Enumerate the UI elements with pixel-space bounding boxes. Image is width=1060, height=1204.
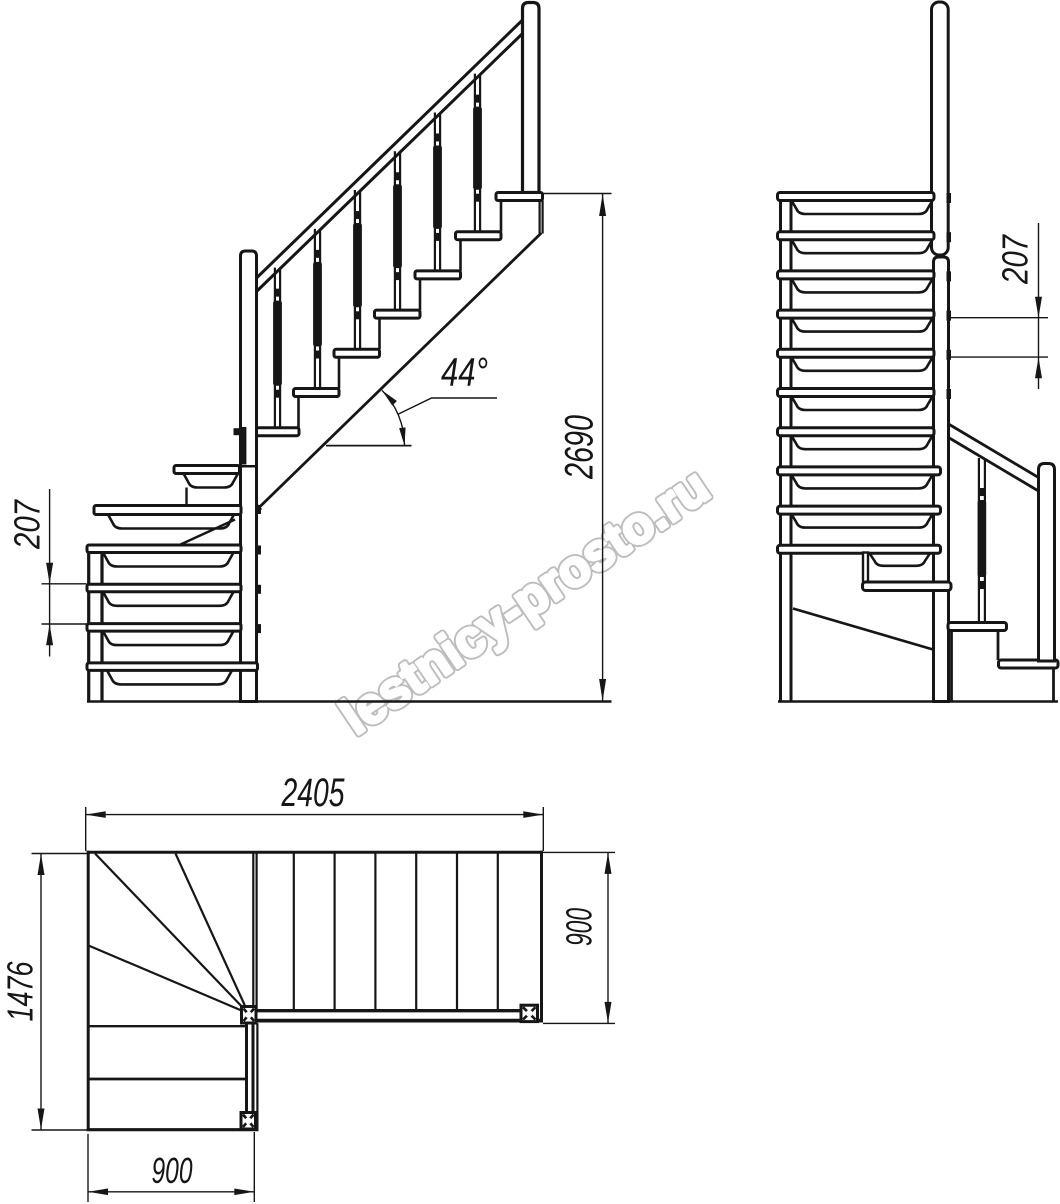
svg-text:1476: 1476 <box>0 961 41 1022</box>
svg-text:207: 207 <box>995 233 1036 284</box>
svg-text:44°: 44° <box>441 351 488 395</box>
svg-text:2690: 2690 <box>558 415 602 480</box>
svg-text:900: 900 <box>559 908 600 946</box>
svg-text:207: 207 <box>7 498 48 549</box>
svg-text:900: 900 <box>152 1150 193 1191</box>
svg-text:2405: 2405 <box>281 771 345 815</box>
